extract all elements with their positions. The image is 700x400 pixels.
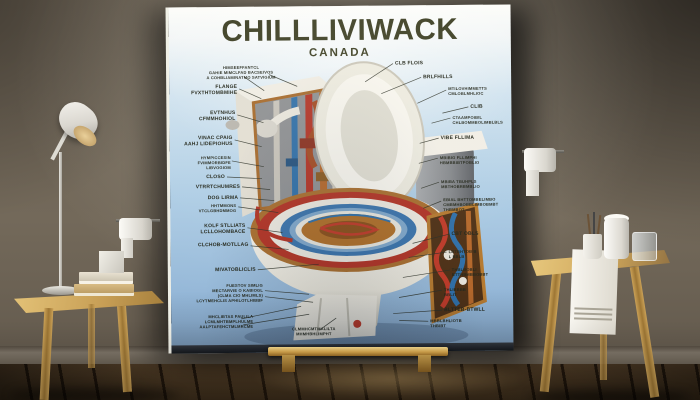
diagram-label-right-10: LBTBHTOB B L BBLB <box>449 249 507 260</box>
diagram-label-left-9: KOLF STLLIATS LCLLOHOMBACE <box>187 223 245 236</box>
diagram-label-left-8: HHTMMONS VTCLGBHDMMOG <box>178 203 236 214</box>
diagram-label-right-12: THLIBBBB BBLIT <box>444 287 502 298</box>
easel-foot-right <box>418 355 431 372</box>
lamp-stem <box>59 152 62 292</box>
towel <box>570 249 619 335</box>
diagram-label-right-4: CTAAMPOIBIL CHLBOMMBOLIMBLBLS <box>452 115 511 126</box>
diagram-label-left-7: DOG LIRMA <box>180 195 238 202</box>
diagram-label-left-0: HIMSEEFFANTCL GAHIE MIMCLFAD BACSEIVOS A… <box>199 65 283 81</box>
cup-with-brushes <box>583 234 602 259</box>
book <box>74 284 134 296</box>
diagram-label-right-7: MBIBA TBUHPLS MBTHOBRBMBLIO <box>441 179 505 190</box>
diagram-label-right-14: MBBLBHLIOTB THBIBT <box>430 318 486 328</box>
diagram-label-right-2: MTILOVHIMMETTS CMLOBLMHLIOC <box>448 86 510 97</box>
table-shadow-left <box>10 388 180 400</box>
brush <box>593 212 595 236</box>
small-box <box>99 251 124 273</box>
diagram-label-right-13: BLTTEB-BTWLL <box>444 307 506 314</box>
easel-foot-left <box>282 355 295 372</box>
glass-jar <box>632 232 657 261</box>
diagram-label-left-2: EVTNHUS CFMMHOHIOL <box>177 110 235 123</box>
diagram-label-left-10: CLCHOB-MOTLLAG <box>191 242 249 249</box>
towel-stripe <box>574 307 612 310</box>
table-leg <box>88 304 95 368</box>
diagram-label-right-9: CBT OBLS <box>451 231 507 238</box>
toilet-paper-roll-right <box>524 148 556 172</box>
diagram-label-left-11: MIVATOBLICLIS <box>198 267 256 274</box>
diagram-label-right-0: CLB FLOIS <box>395 60 459 67</box>
paper-roll <box>604 218 629 259</box>
diagram-label-right-6: MBIBIG FLLIMPHI HBMBBIBTPOBLIO <box>440 155 504 166</box>
diagram-label-left-12: FUESTOV SIMLIG MECTARVIE O KABIOGL (CLMA… <box>191 283 263 304</box>
toilet-paper-roll-left <box>119 218 152 240</box>
toilet-paper-sheet-right <box>526 170 539 196</box>
diagram-label-left-3: VINAC CPAIG AAHJ LIDEPIOHUS <box>175 135 233 148</box>
diagram-label-left-4: HYMPICCESIN FVIMMORBIDFE LIBVOGIOM <box>173 155 231 171</box>
stool-shadow <box>530 390 690 400</box>
diagram-label-left-1: FLANGE FVXTHTOMBMIHE <box>179 84 237 97</box>
infographic-poster: CHILLLIVIWACK CANADA <box>168 5 513 354</box>
diagram-label-left-6: VTRRTCHUMRES <box>182 184 240 191</box>
diagram-label-right-11: THBLBOBLI BTTHBMBBOBBT <box>452 267 510 278</box>
towel-stripe <box>574 317 612 320</box>
book <box>79 272 133 284</box>
diagram-label-left-5: CLOSO <box>170 174 225 181</box>
diagram-label-left-13: MHCLIBTAS PAULILA LCMLMHTBMPLHULME AALPT… <box>181 314 253 330</box>
diagram-label-right-5: VIBE FLLIMA <box>441 135 505 142</box>
diagram-label-bottom: CLMMHCMTMALILTA MHMHBHLIMPHT <box>276 326 351 337</box>
towel-stripe <box>574 312 612 315</box>
diagram-label-right-3: CLIB <box>470 104 510 111</box>
diagram-label-right-1: BRLFHILLS <box>423 74 487 81</box>
rendered-scene: CHILLLIVIWACK CANADA <box>0 0 700 400</box>
diagram-label-right-8: EBIAL BHTTOMBELIMBO CMBMHBOBBLIMBOBMBT T… <box>443 197 509 213</box>
